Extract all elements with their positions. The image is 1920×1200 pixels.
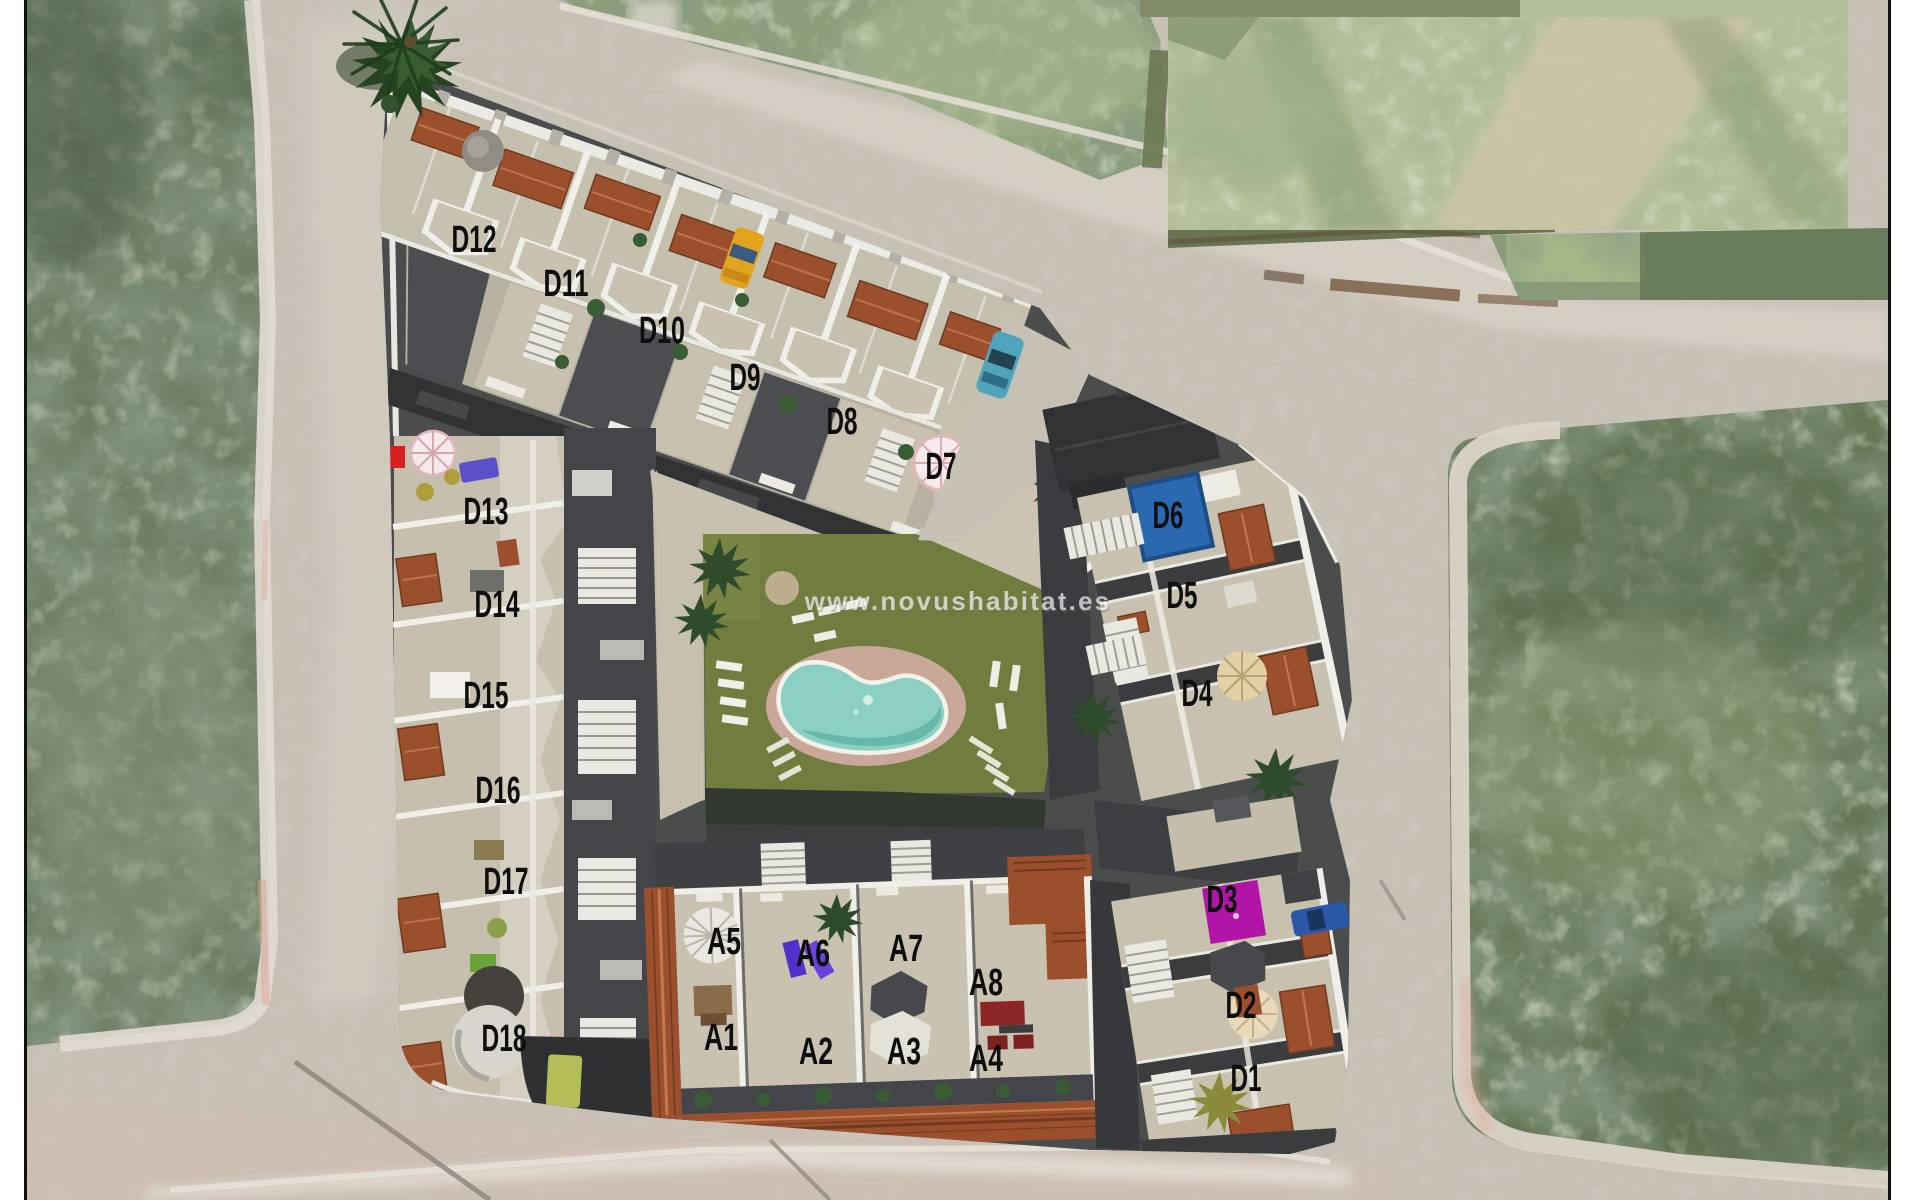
svg-text:www.novushabitat.es: www.novushabitat.es xyxy=(804,586,1112,616)
svg-text:A6: A6 xyxy=(796,933,830,975)
svg-text:A5: A5 xyxy=(707,921,741,963)
svg-text:A4: A4 xyxy=(969,1038,1003,1080)
svg-text:D1: D1 xyxy=(1231,1058,1262,1100)
svg-text:D12: D12 xyxy=(452,219,497,261)
svg-text:D8: D8 xyxy=(827,401,858,443)
svg-text:A8: A8 xyxy=(969,962,1003,1004)
svg-text:D3: D3 xyxy=(1207,879,1238,921)
svg-text:D4: D4 xyxy=(1182,673,1213,715)
svg-text:D14: D14 xyxy=(475,584,520,626)
svg-text:A1: A1 xyxy=(704,1017,738,1059)
svg-text:D16: D16 xyxy=(476,770,521,812)
svg-text:D15: D15 xyxy=(464,675,509,717)
svg-text:A2: A2 xyxy=(799,1031,833,1073)
svg-text:D18: D18 xyxy=(482,1018,527,1060)
svg-text:D5: D5 xyxy=(1167,575,1198,617)
svg-text:D9: D9 xyxy=(730,357,761,399)
svg-text:D7: D7 xyxy=(926,446,957,488)
svg-text:A7: A7 xyxy=(889,928,923,970)
svg-text:D10: D10 xyxy=(639,310,685,352)
svg-text:D2: D2 xyxy=(1226,985,1257,1027)
svg-text:D17: D17 xyxy=(484,861,529,903)
svg-text:D11: D11 xyxy=(544,263,589,305)
svg-text:A3: A3 xyxy=(887,1031,921,1073)
svg-text:D6: D6 xyxy=(1153,495,1184,537)
svg-text:D13: D13 xyxy=(464,491,509,533)
